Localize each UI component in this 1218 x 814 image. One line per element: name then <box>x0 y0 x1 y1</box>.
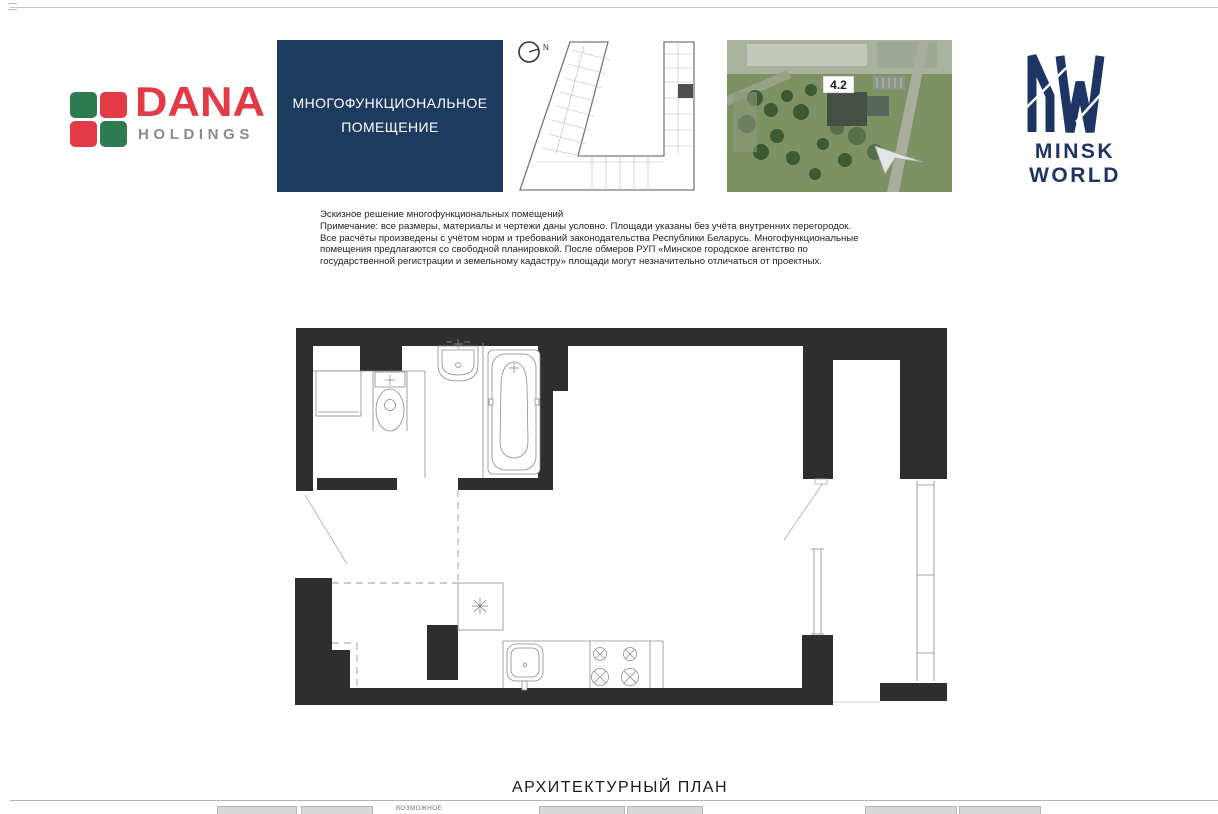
footer-table-cell <box>301 806 373 814</box>
footer-table-cell <box>959 806 1041 814</box>
balcony-window <box>811 549 824 634</box>
dana-sub-text: HOLDINGS <box>138 126 254 143</box>
north-compass-icon: N <box>519 42 549 62</box>
note-line: Примечание: все размеры, материалы и чер… <box>320 221 935 233</box>
document-page: DANA HOLDINGS МНОГОФУНКЦИОНАЛЬНОЕ ПОМЕЩЕ… <box>0 0 1218 814</box>
block-label: 4.2 <box>823 76 854 93</box>
footer-table-cell <box>217 806 297 814</box>
balcony-glazing <box>917 481 934 681</box>
note-line: помещения предлагаются со свободной план… <box>320 244 935 256</box>
premises-title-box: МНОГОФУНКЦИОНАЛЬНОЕ ПОМЕЩЕНИЕ <box>277 40 503 192</box>
aerial-photo: 4.2 <box>727 40 952 192</box>
note-line: Эскизное решение многофункциональных пом… <box>320 209 935 221</box>
north-label: N <box>543 43 549 52</box>
dana-square-red-tr <box>100 92 127 118</box>
balcony-door-swing <box>784 483 823 540</box>
mw-monogram-icon <box>1020 50 1130 136</box>
dana-square-green-br <box>100 121 127 147</box>
dana-square-green-tl <box>70 92 97 118</box>
premises-title-line2: ПОМЕЩЕНИЕ <box>341 116 439 140</box>
building-outline <box>520 42 694 190</box>
washing-machine-icon <box>316 371 361 416</box>
disclaimer-note: Эскизное решение многофункциональных пом… <box>320 209 935 268</box>
plan-title: АРХИТЕКТУРНЫЙ ПЛАН <box>0 779 1218 797</box>
bathtub-icon <box>488 350 540 474</box>
vent-asterisk-icon <box>472 598 488 614</box>
note-line: Все расчёты произведены с учётом норм и … <box>320 233 935 245</box>
footer-table-cell <box>627 806 703 814</box>
kitchen-sink-icon <box>507 644 543 690</box>
dana-brand-text: DANA <box>135 81 265 122</box>
dana-holdings-logo: DANA HOLDINGS <box>70 85 270 155</box>
floor-plan <box>280 313 970 713</box>
footer-table-cell <box>865 806 957 814</box>
minsk-world-logo: MINSK WORLD <box>985 50 1165 190</box>
entrance-door-swing <box>305 495 347 564</box>
highlighted-unit <box>678 84 693 98</box>
note-line: государственной регистрации и земельному… <box>320 256 935 268</box>
building-floor-thumbnail: N <box>512 36 708 198</box>
block-number: 4.2 <box>830 78 847 92</box>
stove-icon <box>592 648 639 686</box>
minsk-world-brand-text: MINSK WORLD <box>985 140 1165 188</box>
footer-rule <box>10 800 1218 801</box>
premises-title-line1: МНОГОФУНКЦИОНАЛЬНОЕ <box>293 92 488 116</box>
toilet-icon <box>375 372 405 431</box>
dana-square-red-bl <box>70 121 97 147</box>
footer-partial-label: ВОЗМОЖНОЕ <box>383 805 455 812</box>
top-rule <box>10 7 1218 8</box>
footer-table-cell <box>539 806 625 814</box>
door-swings <box>305 479 827 564</box>
